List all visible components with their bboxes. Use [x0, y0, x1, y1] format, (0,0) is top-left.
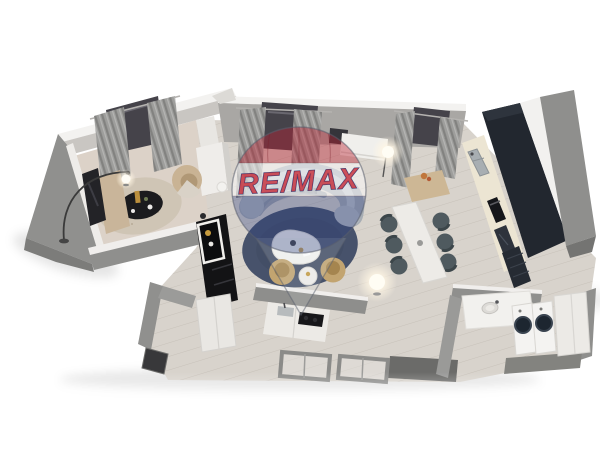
etagere-gold-vase — [205, 230, 211, 236]
ball-lamp-base — [123, 184, 129, 186]
floor-lamp-b-base — [373, 292, 381, 295]
floor-lamp-b — [369, 274, 385, 290]
table-candle-2 — [131, 209, 135, 213]
arc-lamp-base — [59, 239, 69, 244]
etagere-white-vase — [209, 242, 214, 247]
apartment-render: RE/MAX — [0, 0, 600, 450]
bathroom-faucet — [495, 300, 499, 304]
washer-1-knob — [519, 310, 522, 313]
etagere-display-frame — [198, 220, 224, 263]
kitchen-faucet — [470, 152, 473, 155]
cooktop-burner-1 — [304, 316, 308, 320]
etagere-lamp — [200, 213, 206, 219]
bottom-fade — [0, 372, 600, 432]
watermark-text: RE/MAX — [237, 163, 360, 201]
washer-2-knob — [540, 308, 543, 311]
floorplan-render: RE/MAX — [0, 0, 600, 450]
pedestal-table — [217, 182, 227, 192]
table-plant — [144, 197, 148, 201]
table-candle — [148, 205, 153, 210]
washer-2-door — [536, 315, 552, 331]
console-flowers — [421, 173, 427, 179]
peninsula-faucet — [284, 303, 285, 308]
ball-lamp — [122, 175, 131, 184]
cooktop-burner-2 — [313, 318, 317, 322]
washer-1-door — [515, 317, 531, 333]
dining-table-decor — [417, 240, 423, 246]
floor-lamp-a — [382, 146, 394, 158]
console-flowers-2 — [427, 177, 431, 181]
